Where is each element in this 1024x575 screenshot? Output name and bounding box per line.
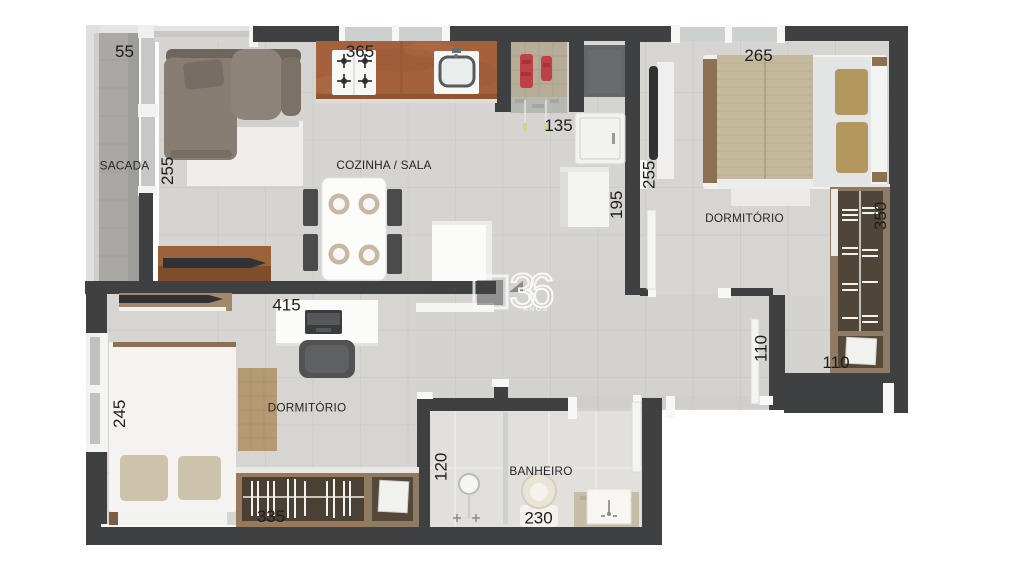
svg-text:415: 415: [272, 296, 300, 315]
svg-text:ANOS: ANOS: [523, 306, 549, 313]
svg-text:230: 230: [524, 509, 552, 528]
svg-text:265: 265: [744, 46, 772, 65]
svg-text:DORMITÓRIO: DORMITÓRIO: [705, 211, 784, 225]
svg-text:DORMITÓRIO: DORMITÓRIO: [268, 401, 347, 415]
svg-text:COZINHA / SALA: COZINHA / SALA: [336, 158, 431, 172]
svg-text:365: 365: [346, 42, 374, 61]
svg-text:55: 55: [115, 42, 134, 61]
svg-text:120: 120: [432, 453, 451, 481]
svg-text:255: 255: [640, 161, 659, 189]
svg-text:110: 110: [752, 335, 771, 362]
svg-text:335: 335: [257, 507, 285, 526]
svg-text:195: 195: [607, 191, 626, 219]
svg-text:110: 110: [822, 353, 849, 372]
svg-text:350: 350: [871, 202, 890, 230]
svg-text:255: 255: [158, 157, 177, 185]
svg-text:245: 245: [110, 400, 129, 428]
svg-text:BANHEIRO: BANHEIRO: [509, 464, 572, 478]
svg-text:SACADA: SACADA: [100, 159, 150, 173]
svg-text:135: 135: [544, 116, 572, 135]
